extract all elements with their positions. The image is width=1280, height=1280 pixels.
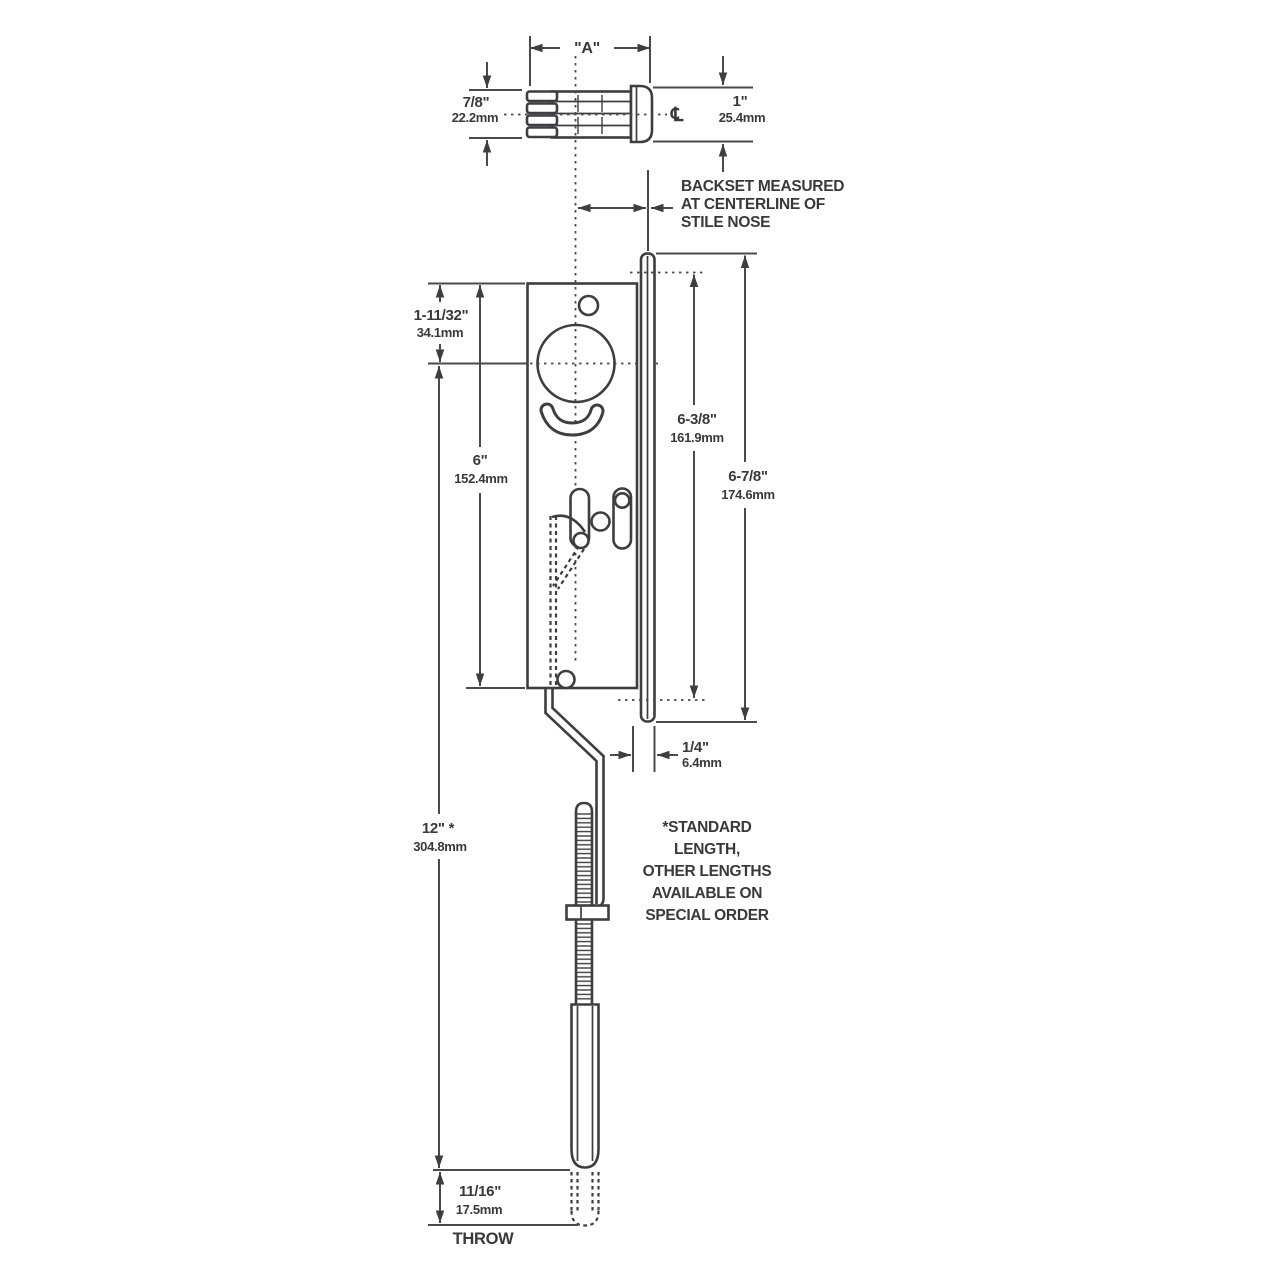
dimension-one-inch: 1" 25.4mm [653,56,765,172]
dim-6-7-8-in: 6-7/8" [728,468,768,485]
bolt-thrown-phantom [572,1172,599,1226]
dimension-nose-offset: 1/4" 6.4mm [610,726,722,772]
mount-hole-top [579,296,598,315]
pivot-hole [592,513,610,531]
length-note-line1: *STANDARD [662,819,751,836]
dim-1-11-32-mm: 34.1mm [417,325,464,340]
centerline-symbol: ℄ [670,105,684,126]
length-note-line5: SPECIAL ORDER [645,907,768,924]
cylinder-cap [631,86,652,142]
finger-tab [527,104,557,114]
dimension-throw: 11/16" 17.5mm THROW [428,1170,578,1248]
flush-bolt-diagram: ℄ "A" 7/8" 22.2mm 1" 25.4mm [0,0,1280,1280]
dim-6-3-8-mm: 161.9mm [670,430,724,445]
dim-1-11-32-in: 1-11/32" [414,307,469,324]
length-note-line2: LENGTH, [674,841,740,858]
length-note: *STANDARD LENGTH, OTHER LENGTHS AVAILABL… [643,819,772,924]
dimension-rod-length: 12" * 304.8mm [413,366,467,1168]
finger-tab [527,116,557,126]
dim-6-3-8-in: 6-3/8" [677,411,717,428]
finger-tab [527,128,557,138]
top-view-cylinder: ℄ [504,86,684,142]
finger-tab [527,92,557,102]
dimension-a: "A" [530,36,650,86]
technical-drawing: ℄ "A" 7/8" 22.2mm 1" 25.4mm [0,0,1280,1280]
dim-1-mm: 25.4mm [719,110,766,125]
dim-1-in: 1" [733,93,748,110]
length-note-line3: OTHER LENGTHS [643,863,772,880]
dim-1-4-mm: 6.4mm [682,755,722,770]
dim-7-8-mm: 22.2mm [452,110,499,125]
dim-1-4-in: 1/4" [682,739,709,756]
dimension-stile-outer: 6-7/8" 174.6mm [656,254,775,723]
dim-12-in: 12" * [422,820,455,837]
dim-7-8-in: 7/8" [463,94,490,111]
dim-11-16-mm: 17.5mm [456,1202,503,1217]
backset-note-line3: STILE NOSE [681,214,770,231]
bolt-body [572,1005,599,1168]
dim-12-mm: 304.8mm [413,839,467,854]
dim-11-16-in: 11/16" [459,1183,501,1200]
mount-hole-bottom [558,671,575,688]
backset-note-line1: BACKSET MEASURED [681,178,844,195]
dim-6-mm: 152.4mm [454,471,508,486]
throw-label: THROW [453,1230,515,1248]
stile-nose [641,254,655,722]
slot-pin [615,493,629,507]
dim-6-in: 6" [473,452,488,469]
backset-note-line2: AT CENTERLINE OF [681,196,825,213]
dim-a-label: "A" [574,40,600,57]
length-note-line4: AVAILABLE ON [652,885,762,902]
lever-pivot [574,533,589,548]
actuating-rod [546,688,604,907]
dim-6-7-8-mm: 174.6mm [721,487,775,502]
backset-dimension: BACKSET MEASURED AT CENTERLINE OF STILE … [578,170,844,251]
dimension-faceplate-height: 6" 152.4mm [454,285,508,686]
adjusting-collar [567,906,609,920]
